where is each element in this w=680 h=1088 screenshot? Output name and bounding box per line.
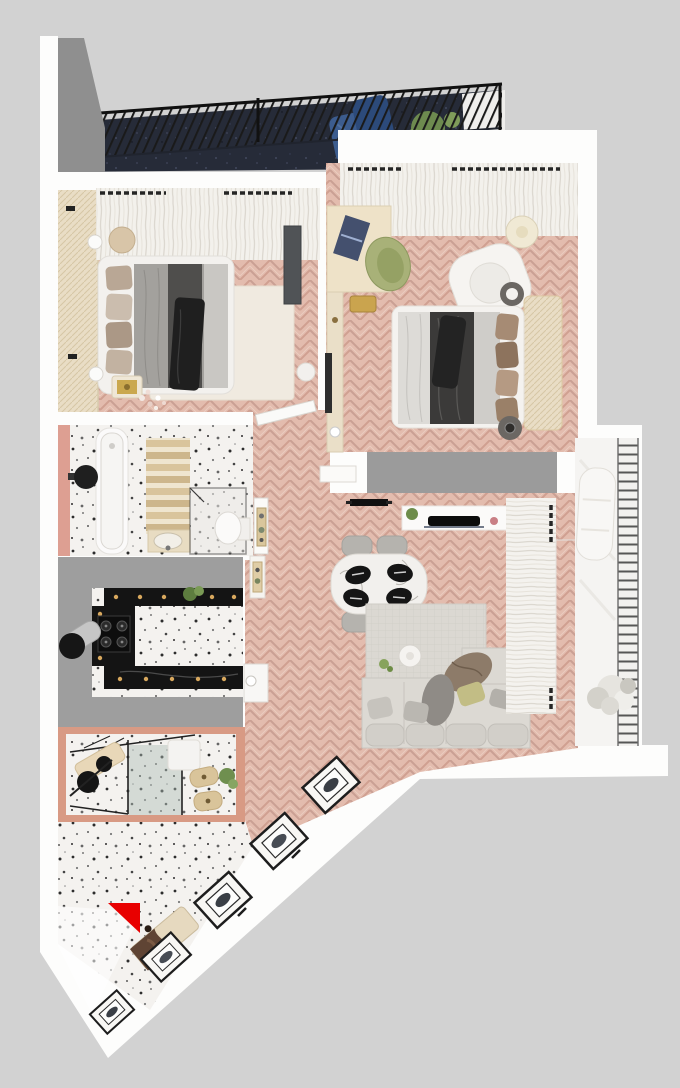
floor-plan-render: [0, 0, 680, 1088]
bed-2: [392, 306, 524, 428]
dark-console: [284, 226, 301, 304]
black-chair-disc: [96, 756, 112, 772]
bedside-lamp: [88, 235, 102, 249]
wardrobe-handle: [66, 206, 75, 211]
shelf-decor: [330, 427, 340, 437]
lounge-chair: [576, 467, 617, 561]
brass-handle-plate: [253, 562, 262, 592]
bed-1: [98, 256, 234, 394]
gold-tray: [350, 296, 376, 312]
pouf: [109, 227, 135, 253]
toilet: [215, 512, 241, 544]
bathtub-inner: [101, 433, 123, 549]
coffee-table-decor: [406, 652, 414, 660]
pink-decor: [490, 517, 498, 525]
gold-tray-table: [112, 376, 142, 398]
white-appliance: [168, 740, 200, 770]
pillow: [402, 700, 429, 724]
round-stool-top: [506, 288, 518, 300]
door-knob: [246, 676, 256, 686]
room-balcony-right: [575, 438, 638, 746]
floor-lamp-top: [516, 226, 528, 238]
bedside-lamp: [89, 367, 103, 381]
dining-chair: [342, 536, 372, 556]
shelf-decor: [332, 317, 338, 323]
bathroom-door-leaf: [254, 498, 268, 554]
bathroom-accent-wall: [58, 425, 70, 556]
wardrobe-handle: [68, 354, 77, 359]
white-stool: [297, 363, 315, 381]
study-plant: [228, 779, 238, 789]
hall-tv: [346, 499, 392, 506]
counter-top: [104, 588, 243, 606]
room-bedroom-1: [58, 188, 320, 412]
black-vessel-sink: [74, 465, 98, 489]
curtains: [506, 498, 556, 714]
gas-hob: [98, 616, 130, 652]
headboard-panel: [524, 296, 562, 430]
wall-tv-strip: [325, 353, 332, 413]
rug-plant: [387, 666, 393, 672]
tv-console: [402, 506, 513, 530]
grey-wardrobe: [367, 452, 557, 493]
bathtub-drain: [109, 443, 115, 449]
console-plant: [406, 508, 418, 520]
tv: [428, 516, 480, 526]
hall-shelf: [320, 466, 356, 482]
round-stool-top: [505, 423, 515, 433]
vanity-sink: [148, 530, 190, 552]
study-door-leaf: [244, 664, 268, 702]
dining-chair: [377, 536, 407, 556]
floor-plan-stage: [0, 0, 680, 1088]
kitchen-door-leaf: [250, 556, 265, 598]
towel-ladder: [146, 438, 190, 534]
